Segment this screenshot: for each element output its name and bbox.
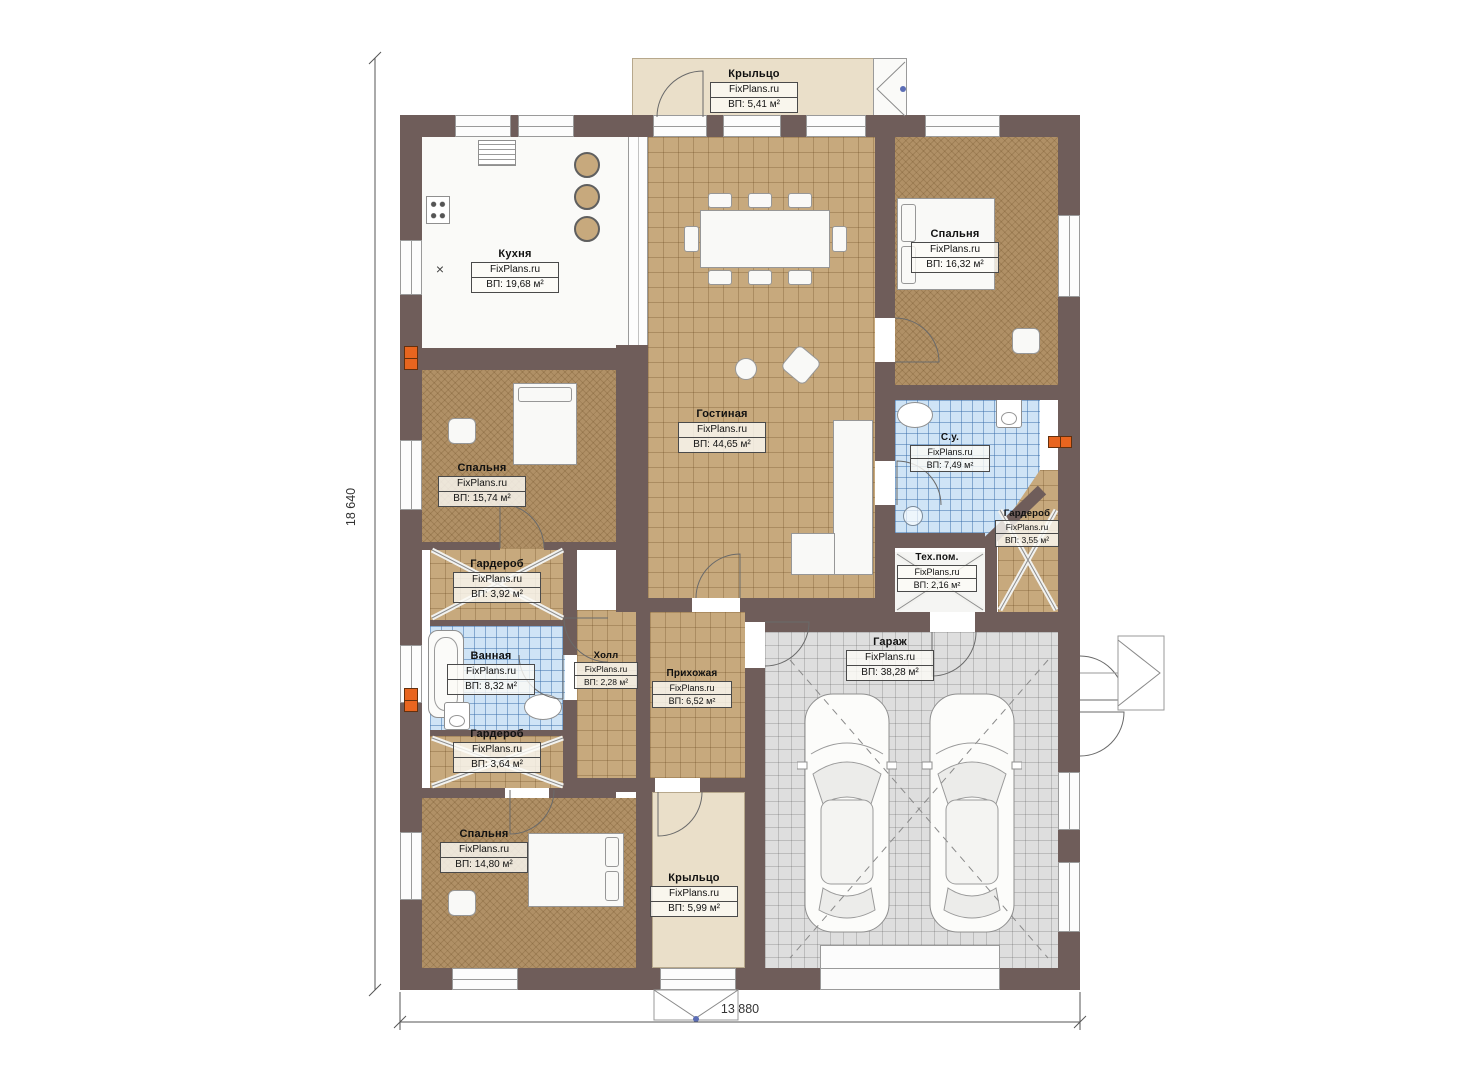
armchair-icon bbox=[448, 418, 476, 444]
chair-icon bbox=[832, 226, 847, 252]
room-label-bedroom-left: Спальня FixPlans.ru ВП: 15,74 м² bbox=[438, 462, 526, 507]
room-label-porch-top: Крыльцо FixPlans.ru ВП: 5,41 м² bbox=[710, 68, 798, 113]
chair-icon bbox=[684, 226, 699, 252]
wall-kitchen-bottom bbox=[422, 348, 616, 370]
room-name: Гостиная bbox=[678, 408, 766, 420]
window bbox=[400, 832, 422, 900]
porch-top-stairs bbox=[873, 58, 907, 118]
radiator-icon bbox=[404, 346, 418, 370]
glass-partition-kitchen bbox=[628, 137, 648, 345]
chair-icon bbox=[788, 193, 812, 208]
wall-bedroom-l-bottom-b bbox=[544, 542, 616, 550]
wall-su-bottom bbox=[875, 533, 985, 548]
room-name: Кухня bbox=[471, 248, 559, 260]
wall-bedroom-l-bottom-a bbox=[422, 542, 500, 550]
window bbox=[400, 240, 422, 295]
room-label-wardrobe-right: Гардероб FixPlans.ru ВП: 3,55 м² bbox=[995, 508, 1059, 547]
brand-box: FixPlans.ru bbox=[440, 842, 528, 858]
wall-porch-b-top-a bbox=[563, 778, 655, 792]
brand-box: FixPlans.ru bbox=[897, 565, 977, 579]
room-label-kitchen: Кухня FixPlans.ru ВП: 19,68 м² bbox=[471, 248, 559, 293]
wall-garage-left-a bbox=[745, 612, 765, 622]
stool-icon bbox=[574, 184, 600, 210]
area-box: ВП: 44,65 м² bbox=[678, 437, 766, 453]
brand-box: FixPlans.ru bbox=[574, 662, 638, 676]
room-label-wardrobe-left: Гардероб FixPlans.ru ВП: 3,92 м² bbox=[453, 558, 541, 603]
sofa-icon bbox=[833, 420, 873, 575]
room-label-wardrobe-bottom: Гардероб FixPlans.ru ВП: 3,64 м² bbox=[453, 728, 541, 773]
window bbox=[518, 115, 574, 137]
window bbox=[400, 440, 422, 510]
room-label-hallway: Прихожая FixPlans.ru ВП: 6,52 м² bbox=[652, 668, 732, 708]
wall-bedroom-b-top-a bbox=[422, 788, 505, 798]
area-box: ВП: 15,74 м² bbox=[438, 491, 526, 507]
floor-plan: × bbox=[0, 0, 1474, 1080]
area-box: ВП: 14,80 м² bbox=[440, 857, 528, 873]
garage-door bbox=[820, 945, 1000, 990]
window bbox=[925, 115, 1000, 137]
window bbox=[1058, 215, 1080, 297]
wall-center-left bbox=[616, 345, 648, 612]
sink-icon bbox=[524, 694, 562, 720]
coffee-table-icon bbox=[735, 358, 757, 380]
car-icon bbox=[922, 688, 1022, 938]
wall-hall-right bbox=[636, 612, 650, 790]
brand-box: FixPlans.ru bbox=[910, 445, 990, 459]
wall-garage-top-b bbox=[975, 612, 1058, 632]
pillow-icon bbox=[605, 837, 619, 867]
radiator-icon bbox=[404, 688, 418, 712]
dimension-width-label: 13 880 bbox=[700, 1002, 780, 1016]
chair-icon bbox=[708, 193, 732, 208]
wall-living-bottom-b bbox=[740, 598, 875, 612]
wall-garage-left-b bbox=[745, 668, 765, 968]
pillow-icon bbox=[605, 871, 619, 901]
area-box: ВП: 5,41 м² bbox=[710, 97, 798, 113]
brand-box: FixPlans.ru bbox=[447, 664, 535, 680]
brand-box: FixPlans.ru bbox=[995, 520, 1059, 534]
area-box: ВП: 8,32 м² bbox=[447, 679, 535, 695]
area-box: ВП: 7,49 м² bbox=[910, 458, 990, 472]
door-opening bbox=[660, 968, 736, 990]
room-name: Прихожая bbox=[652, 668, 732, 679]
chair-icon bbox=[708, 270, 732, 285]
brand-box: FixPlans.ru bbox=[911, 242, 999, 258]
dimension-height-label: 18 640 bbox=[344, 488, 358, 526]
wall-garage-top-a bbox=[765, 612, 930, 632]
brand-box: FixPlans.ru bbox=[453, 742, 541, 758]
armchair-icon bbox=[1012, 328, 1040, 354]
armchair-icon bbox=[448, 890, 476, 916]
area-box: ВП: 3,55 м² bbox=[995, 533, 1059, 547]
area-box: ВП: 2,16 м² bbox=[897, 578, 977, 592]
window bbox=[1058, 862, 1080, 932]
room-name: Спальня bbox=[438, 462, 526, 474]
stool-icon bbox=[574, 152, 600, 178]
room-name: Гардероб bbox=[995, 508, 1059, 519]
room-label-bedroom-bottom: Спальня FixPlans.ru ВП: 14,80 м² bbox=[440, 828, 528, 873]
brand-box: FixPlans.ru bbox=[678, 422, 766, 438]
wall-living-bottom-a bbox=[648, 598, 692, 612]
door-opening bbox=[653, 115, 707, 137]
wall-living-right-a bbox=[875, 137, 895, 318]
marker-dot bbox=[693, 1016, 699, 1022]
brand-box: FixPlans.ru bbox=[650, 886, 738, 902]
chair-icon bbox=[748, 270, 772, 285]
shower-drain-icon bbox=[903, 506, 923, 526]
wall-living-right-c bbox=[875, 505, 895, 615]
toilet-icon bbox=[996, 398, 1022, 428]
window bbox=[723, 115, 781, 137]
room-name: Гардероб bbox=[453, 728, 541, 740]
room-label-bath: Ванная FixPlans.ru ВП: 8,32 м² bbox=[447, 650, 535, 695]
area-box: ВП: 16,32 м² bbox=[911, 257, 999, 273]
area-box: ВП: 3,64 м² bbox=[453, 757, 541, 773]
brand-box: FixPlans.ru bbox=[471, 262, 559, 278]
sofa-chaise-icon bbox=[791, 533, 835, 575]
fridge-icon bbox=[478, 140, 516, 166]
pillow-icon bbox=[518, 387, 572, 402]
area-box: ВП: 2,28 м² bbox=[574, 675, 638, 689]
wall-hall-left-a bbox=[563, 545, 577, 655]
area-box: ВП: 19,68 м² bbox=[471, 277, 559, 293]
car-icon bbox=[797, 688, 897, 938]
stool-icon bbox=[574, 216, 600, 242]
room-name: Гардероб bbox=[453, 558, 541, 570]
room-name: Тех.пом. bbox=[897, 552, 977, 563]
window bbox=[455, 115, 511, 137]
dining-table-icon bbox=[700, 210, 830, 268]
area-box: ВП: 5,99 м² bbox=[650, 901, 738, 917]
room-label-porch-bottom: Крыльцо FixPlans.ru ВП: 5,99 м² bbox=[650, 872, 738, 917]
brand-box: FixPlans.ru bbox=[846, 650, 934, 666]
area-box: ВП: 3,92 м² bbox=[453, 587, 541, 603]
room-label-bedroom-tr: Спальня FixPlans.ru ВП: 16,32 м² bbox=[911, 228, 999, 273]
room-label-hall: Холл FixPlans.ru ВП: 2,28 м² bbox=[574, 650, 638, 689]
room-label-su: С.у. FixPlans.ru ВП: 7,49 м² bbox=[910, 432, 990, 472]
wall-bedroom-tr-bottom bbox=[895, 385, 1058, 400]
room-name: Спальня bbox=[440, 828, 528, 840]
window bbox=[452, 968, 518, 990]
room-label-living: Гостиная FixPlans.ru ВП: 44,65 м² bbox=[678, 408, 766, 453]
brand-box: FixPlans.ru bbox=[453, 572, 541, 588]
wall-porch-b-top-b bbox=[700, 778, 765, 792]
room-label-garage: Гараж FixPlans.ru ВП: 38,28 м² bbox=[846, 636, 934, 681]
wall-hall-left-b bbox=[563, 700, 577, 790]
opening-symbol-chevron bbox=[1118, 640, 1160, 706]
room-name: Гараж bbox=[846, 636, 934, 648]
room-name: Ванная bbox=[447, 650, 535, 662]
window bbox=[806, 115, 866, 137]
stove-icon bbox=[426, 196, 450, 224]
opening-symbol bbox=[1118, 636, 1164, 710]
area-box: ВП: 38,28 м² bbox=[846, 665, 934, 681]
room-label-tech: Тех.пом. FixPlans.ru ВП: 2,16 м² bbox=[897, 552, 977, 592]
radiator-icon bbox=[1048, 436, 1072, 448]
brand-box: FixPlans.ru bbox=[438, 476, 526, 492]
chair-icon bbox=[788, 270, 812, 285]
wall-wardrobe-bath bbox=[430, 620, 565, 626]
chair-icon bbox=[748, 193, 772, 208]
room-name: Холл bbox=[574, 650, 638, 661]
wall-living-right-b bbox=[875, 362, 895, 461]
sink-icon bbox=[897, 402, 933, 428]
room-name: Спальня bbox=[911, 228, 999, 240]
room-name: Крыльцо bbox=[710, 68, 798, 80]
brand-box: FixPlans.ru bbox=[710, 82, 798, 98]
floor-hall bbox=[577, 610, 636, 790]
brand-box: FixPlans.ru bbox=[652, 681, 732, 695]
room-name: Крыльцо bbox=[650, 872, 738, 884]
kitchen-sink-icon: × bbox=[430, 262, 450, 276]
toilet-icon bbox=[444, 702, 470, 730]
area-box: ВП: 6,52 м² bbox=[652, 694, 732, 708]
room-name: С.у. bbox=[910, 432, 990, 443]
window bbox=[1058, 772, 1080, 830]
